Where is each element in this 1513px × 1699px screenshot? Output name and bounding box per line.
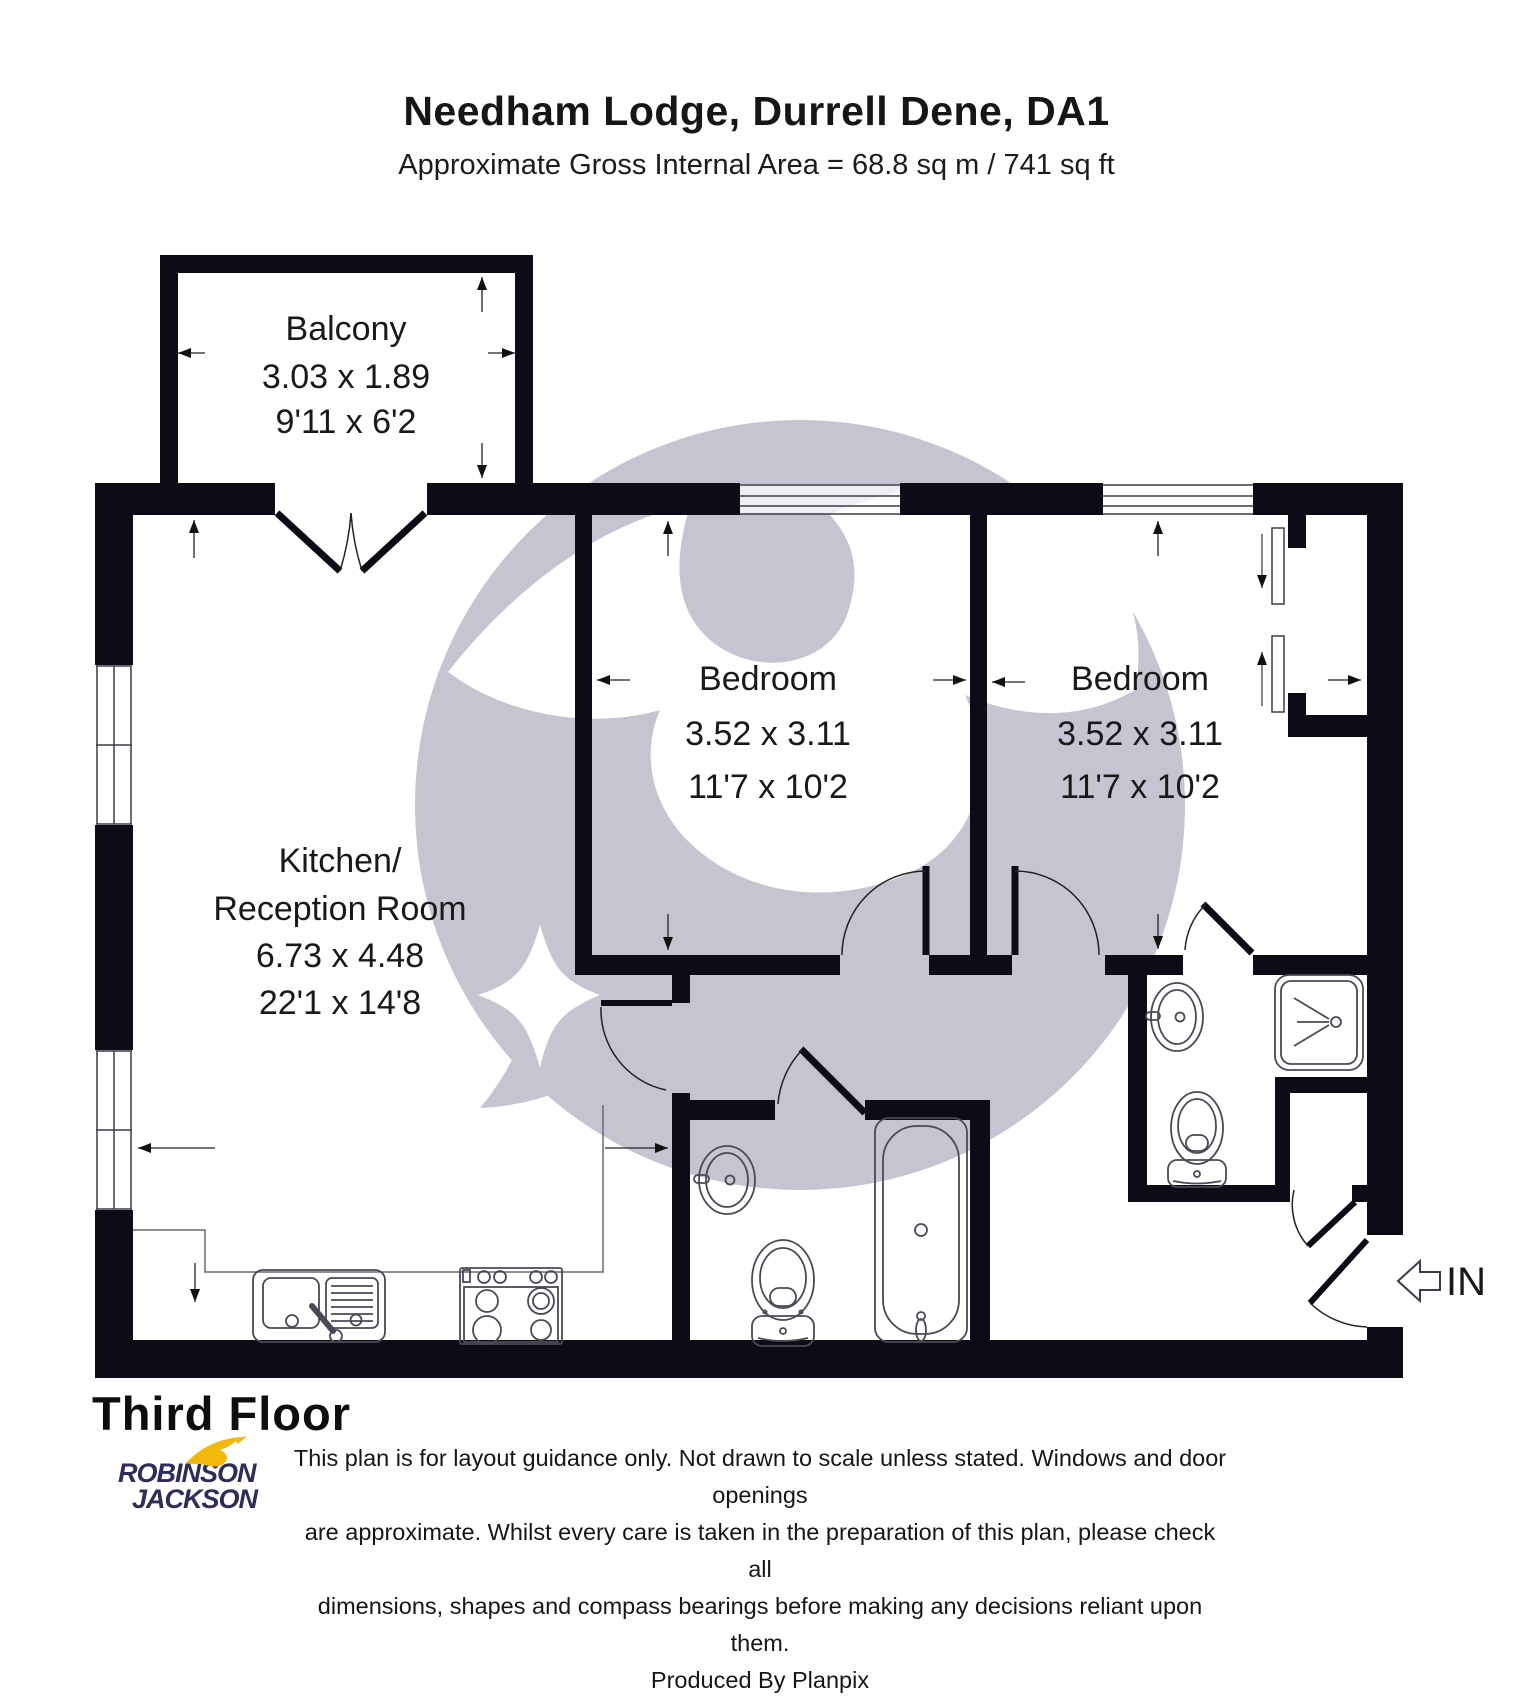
- wall: [427, 483, 740, 515]
- wall: [690, 1100, 775, 1120]
- wall: [1128, 975, 1147, 1200]
- wall: [575, 515, 592, 975]
- window: [740, 484, 900, 514]
- entrance: IN: [1398, 1260, 1486, 1304]
- wall: [1253, 955, 1367, 975]
- wall: [1367, 483, 1403, 1235]
- window: [96, 1050, 132, 1210]
- entry-jamb: [1352, 1185, 1367, 1202]
- swallow-icon: [184, 1436, 248, 1470]
- kitchen-counter: [133, 1105, 603, 1272]
- entrance-arrow-icon: [1398, 1261, 1440, 1301]
- wall: [1275, 1077, 1367, 1093]
- shower-icon: [1275, 975, 1363, 1070]
- hob-icon: [460, 1268, 562, 1344]
- floor-plan: Balcony 3.03 x 1.89 9'11 x 6'2 Bedroom 3…: [0, 0, 1513, 1600]
- balcony-wall: [515, 255, 533, 483]
- wall: [1275, 1093, 1290, 1185]
- bedroom1-label: Bedroom: [699, 660, 837, 698]
- wall: [865, 1100, 970, 1120]
- kitchen-dim-imperial: 22'1 x 14'8: [259, 984, 421, 1022]
- disclaimer-line: Produced By Planpix: [290, 1662, 1230, 1699]
- kitchen-sink-icon: [253, 1270, 385, 1342]
- entry-doors: [1292, 1190, 1367, 1327]
- wall: [95, 1340, 1403, 1378]
- entrance-label: IN: [1446, 1260, 1486, 1304]
- balcony-dim-imperial: 9'11 x 6'2: [276, 403, 417, 441]
- brand-line2: JACKSON: [132, 1486, 297, 1512]
- wall: [970, 1100, 990, 1340]
- wall: [575, 955, 840, 975]
- floorplan-page: { "header": { "title": "Needham Lodge, D…: [0, 0, 1513, 1600]
- wall: [672, 975, 690, 1003]
- kitchen-label-line2: Reception Room: [213, 890, 466, 928]
- wall: [95, 825, 133, 1050]
- kitchen-label-line1: Kitchen/: [279, 842, 402, 880]
- disclaimer-line: dimensions, shapes and compass bearings …: [290, 1588, 1230, 1662]
- kitchen-dim-metric: 6.73 x 4.48: [256, 937, 424, 975]
- disclaimer: This plan is for layout guidance only. N…: [290, 1440, 1230, 1699]
- balcony-dim-metric: 3.03 x 1.89: [262, 358, 430, 396]
- wall: [1105, 955, 1183, 975]
- wall: [672, 1093, 690, 1345]
- bedroom2-dim-metric: 3.52 x 3.11: [1057, 715, 1223, 753]
- balcony-label: Balcony: [286, 310, 407, 348]
- wardrobe-sliding-doors-icon: [1262, 528, 1284, 712]
- wall: [970, 515, 987, 955]
- toilet-icon: [752, 1240, 814, 1346]
- wardrobe-wall-stub: [1288, 515, 1306, 548]
- bedroom1-dim-imperial: 11'7 x 10'2: [688, 768, 848, 806]
- bedroom2-dim-imperial: 11'7 x 10'2: [1060, 768, 1220, 806]
- floor-label: Third Floor: [92, 1386, 351, 1441]
- disclaimer-line: are approximate. Whilst every care is ta…: [290, 1514, 1230, 1588]
- balcony-wall: [160, 255, 533, 273]
- ensuite-door: [1185, 904, 1252, 953]
- bedroom1-dim-metric: 3.52 x 3.11: [685, 715, 851, 753]
- window: [96, 665, 132, 825]
- brand-logo: ROBINSON JACKSON: [112, 1460, 297, 1550]
- balcony-french-doors: [277, 513, 425, 571]
- ensuite-toilet-icon: [1168, 1092, 1226, 1187]
- disclaimer-line: This plan is for layout guidance only. N…: [290, 1440, 1230, 1514]
- ensuite-basin-icon: [1146, 983, 1203, 1051]
- wardrobe-wall-stub: [1288, 715, 1367, 737]
- wall: [900, 483, 1103, 515]
- balcony-wall: [160, 255, 178, 483]
- wall: [929, 955, 1012, 975]
- window: [1103, 484, 1253, 514]
- wall: [95, 483, 133, 665]
- bedroom2-label: Bedroom: [1071, 660, 1209, 698]
